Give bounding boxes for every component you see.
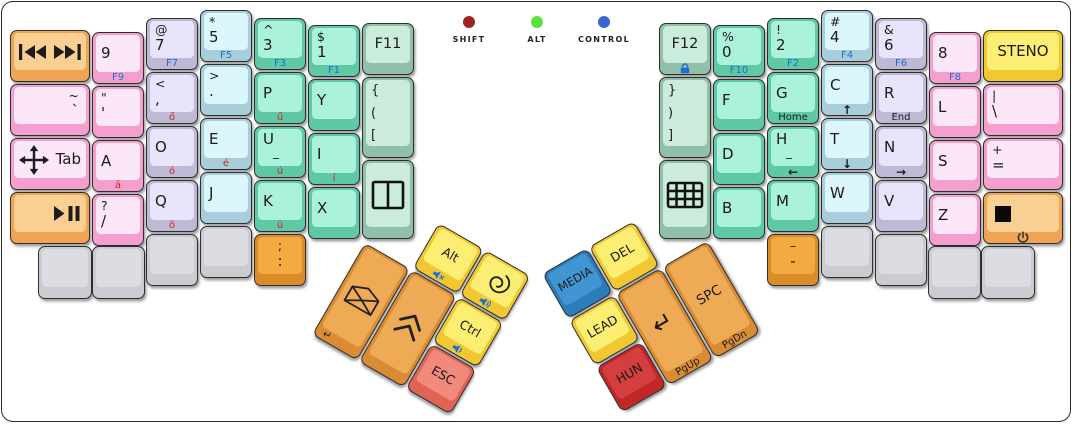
key-4[interactable]: #4F4 — [821, 10, 873, 62]
key-label: C — [830, 77, 840, 94]
key-3[interactable]: ^3F3 — [254, 18, 306, 70]
key-prev-next-track[interactable] — [10, 30, 90, 82]
key-6[interactable]: &6F6 — [875, 18, 927, 70]
key-r[interactable]: REnd — [875, 72, 927, 124]
key-tilde[interactable]: ~` — [10, 84, 90, 136]
key-shift-label: * — [209, 15, 215, 29]
key-tab[interactable]: Tab — [10, 138, 90, 190]
key-label: DEL — [608, 241, 636, 265]
key-t[interactable]: T↓ — [821, 118, 873, 170]
keyboard-layout-board: SHIFTALTCONTROL ~`Tab9F9"'Aá?/@7F7<,őOóQ… — [0, 0, 1073, 424]
key-label: D — [722, 146, 734, 163]
key-front-legend: F8 — [933, 72, 977, 83]
key-label: Q — [155, 193, 167, 210]
key-f12[interactable]: F12 — [659, 23, 711, 75]
key-pipe[interactable]: |\ — [983, 84, 1063, 136]
key-label: , — [155, 91, 160, 108]
key-label: M — [776, 193, 789, 210]
key-blank[interactable] — [981, 246, 1035, 299]
key-plus[interactable]: += — [983, 138, 1063, 190]
key-open-brackets[interactable]: {([ — [362, 77, 414, 158]
key-label: ↵ — [647, 306, 679, 340]
key-label: P — [263, 85, 272, 102]
prev-next-icon — [18, 43, 82, 61]
key-label: 6 — [884, 37, 894, 54]
key-label: Tab — [56, 151, 81, 168]
indicator-control: CONTROL — [564, 16, 644, 44]
key-front-legend: F4 — [825, 50, 869, 61]
key-label: T — [830, 131, 839, 148]
key-front-legend: ű — [258, 112, 302, 123]
key-front-legend: é — [204, 158, 248, 169]
key-dash[interactable]: –- — [767, 234, 819, 286]
key-shift-label: – — [790, 239, 796, 253]
key-label: E — [209, 131, 218, 148]
key-label: ` — [72, 103, 80, 120]
key-label: G — [776, 85, 788, 102]
key-label: B — [722, 200, 732, 217]
key-d[interactable]: D — [713, 133, 765, 185]
key-sub-label: _ — [273, 148, 279, 156]
key-label: LEAD — [585, 312, 620, 340]
key-label: J — [209, 185, 213, 202]
key-blank[interactable] — [38, 246, 92, 299]
key-blank[interactable] — [92, 246, 145, 299]
key-front-legend: → — [879, 166, 923, 177]
key-front-legend: ö — [150, 220, 194, 231]
key-label: ( — [371, 107, 376, 120]
key-label: 3 — [263, 37, 273, 54]
key-label: ) — [668, 107, 673, 120]
key-shift-label: > — [209, 69, 219, 83]
key-o[interactable]: Oó — [146, 126, 198, 178]
key-blank[interactable] — [821, 226, 873, 278]
key-label: Ctrl — [457, 317, 483, 340]
key-front-legend: Home — [771, 112, 815, 123]
key-label: F11 — [375, 37, 402, 53]
key-front-legend — [663, 63, 707, 74]
key-blank[interactable] — [875, 234, 927, 286]
key-sub-label: _ — [786, 148, 792, 156]
key-1[interactable]: $1F1 — [308, 25, 360, 77]
key-front-legend: F6 — [879, 58, 923, 69]
key-label: = — [992, 157, 1005, 174]
key-label: V — [884, 193, 894, 210]
key-label: F12 — [672, 37, 699, 53]
key-label: 9 — [101, 45, 111, 62]
key-comma[interactable]: <,ő — [146, 72, 198, 124]
key-shift-label: " — [101, 91, 107, 105]
key-front-legend: F2 — [771, 58, 815, 69]
key-label: O — [155, 139, 167, 156]
key-label: [ — [371, 129, 376, 142]
key-steno[interactable]: STENO — [983, 30, 1063, 82]
key-a[interactable]: Aá — [92, 140, 144, 192]
key-y[interactable]: Y — [308, 79, 360, 131]
key-label: L — [938, 99, 946, 116]
key-front-legend: ← — [771, 166, 815, 177]
key-front-legend: F10 — [717, 65, 761, 76]
indicator-led-dot — [598, 16, 610, 28]
key-q[interactable]: Qö — [146, 180, 198, 232]
key-shift-label: % — [722, 30, 734, 44]
key-label: I — [317, 146, 321, 163]
key-p[interactable]: Pű — [254, 72, 306, 124]
key-label: } — [668, 84, 676, 97]
key-label: R — [884, 85, 894, 102]
key-label: S — [938, 153, 948, 170]
key-semicolon[interactable]: ;: — [254, 234, 306, 286]
key-front-legend: F5 — [204, 50, 248, 61]
key-f11[interactable]: F11 — [362, 23, 414, 75]
key-shift-label: | — [992, 89, 996, 103]
key-shift-label: ; — [278, 239, 282, 253]
key-label: STENO — [997, 43, 1048, 60]
key-label: / — [101, 213, 106, 230]
key-quote[interactable]: "' — [92, 86, 144, 138]
key-g[interactable]: GHome — [767, 72, 819, 124]
key-shift-label: # — [830, 15, 840, 29]
key-front-legend: ő — [150, 112, 194, 123]
key-label: 7 — [155, 37, 165, 54]
key-s[interactable]: S — [929, 140, 981, 192]
move-icon — [19, 145, 49, 175]
key-blank[interactable] — [928, 246, 981, 299]
envelope-icon — [341, 277, 386, 318]
key-label: 2 — [776, 37, 786, 54]
key-8[interactable]: 8F8 — [929, 32, 981, 84]
key-k[interactable]: Kü — [254, 180, 306, 232]
key-z[interactable]: Z — [929, 194, 981, 246]
key-front-legend: á — [96, 180, 140, 191]
key-c[interactable]: C↑ — [821, 64, 873, 116]
key-front-legend: ú — [258, 166, 302, 177]
key-f[interactable]: F — [713, 79, 765, 131]
key-stop-power[interactable] — [983, 192, 1063, 244]
key-label: MEDIA — [556, 265, 595, 295]
key-label: : — [277, 253, 282, 270]
key-7[interactable]: @7F7 — [146, 18, 198, 70]
key-front-legend: F3 — [258, 58, 302, 69]
key-u[interactable]: U_ú — [254, 126, 306, 178]
indicator-led-dot — [463, 16, 475, 28]
key-shift-label: $ — [317, 30, 325, 44]
key-label: HUN — [614, 360, 645, 386]
key-shift-label: ! — [776, 23, 781, 37]
key-label: Alt — [440, 244, 462, 264]
key-label: 8 — [938, 45, 948, 62]
power-icon — [1016, 231, 1030, 245]
key-e[interactable]: Eé — [200, 118, 252, 170]
key-n[interactable]: N→ — [875, 126, 927, 178]
key-label: ] — [668, 129, 673, 142]
key-slash[interactable]: ?/ — [92, 194, 144, 246]
key-shift-label: ^ — [263, 23, 273, 37]
key-0[interactable]: %0F10 — [713, 25, 765, 77]
key-label: K — [263, 193, 273, 210]
key-label: \ — [992, 103, 997, 120]
key-b[interactable]: B — [713, 187, 765, 239]
key-front-legend: ó — [150, 166, 194, 177]
key-label: Y — [317, 92, 326, 109]
key-w[interactable]: W — [821, 172, 873, 224]
key-period[interactable]: >. — [200, 64, 252, 116]
key-label: SPC — [694, 283, 724, 309]
key-9[interactable]: 9F9 — [92, 32, 144, 84]
lock-icon — [679, 63, 691, 74]
key-m[interactable]: M — [767, 180, 819, 232]
key-label: F — [722, 92, 731, 109]
key-front-legend — [987, 232, 1059, 243]
key-label: 4 — [830, 29, 840, 46]
stop-square-icon — [992, 206, 1011, 222]
key-blank[interactable] — [200, 226, 252, 278]
key-5[interactable]: *5F5 — [200, 10, 252, 62]
key-label: A — [101, 153, 111, 170]
indicator-label: CONTROL — [564, 35, 644, 44]
key-shift-label: + — [992, 143, 1002, 157]
key-front-legend: F9 — [96, 72, 140, 83]
key-x[interactable]: X — [308, 187, 360, 239]
key-v[interactable]: V — [875, 180, 927, 232]
key-label: Z — [938, 207, 948, 224]
key-front-legend: í — [312, 173, 356, 184]
key-h[interactable]: H_← — [767, 126, 819, 178]
key-front-legend: F7 — [150, 58, 194, 69]
key-label: { — [371, 84, 379, 97]
key-shift-label: < — [155, 77, 165, 91]
key-front-legend: ü — [258, 220, 302, 231]
key-label: W — [830, 185, 845, 202]
key-label: . — [209, 83, 214, 100]
indicator-led-dot — [531, 16, 543, 28]
key-label: - — [790, 253, 795, 270]
key-blank[interactable] — [146, 234, 198, 286]
key-front-legend: ↑ — [825, 104, 869, 115]
key-l[interactable]: L — [929, 86, 981, 138]
key-label: N — [884, 139, 895, 156]
key-label: 5 — [209, 29, 219, 46]
key-shift-label: ? — [101, 199, 108, 213]
key-play-pause[interactable] — [10, 192, 90, 244]
chevrons-up-icon — [388, 303, 432, 346]
key-label: ESC — [429, 363, 457, 387]
key-front-legend: ↓ — [825, 158, 869, 169]
key-label: X — [317, 200, 327, 217]
key-2[interactable]: !2F2 — [767, 18, 819, 70]
key-shift-label: & — [884, 23, 894, 37]
key-shift-label: @ — [155, 23, 168, 37]
key-shift-label: ~ — [69, 89, 79, 103]
key-front-legend: F1 — [312, 65, 356, 76]
key-j[interactable]: J — [200, 172, 252, 224]
play-pause-icon — [53, 205, 81, 222]
key-front-legend: End — [879, 112, 923, 123]
key-label: 1 — [317, 44, 327, 61]
key-i[interactable]: Ií — [308, 133, 360, 185]
key-label: ' — [101, 105, 105, 122]
key-close-brackets[interactable]: })] — [659, 77, 711, 158]
key-label: 0 — [722, 44, 732, 61]
